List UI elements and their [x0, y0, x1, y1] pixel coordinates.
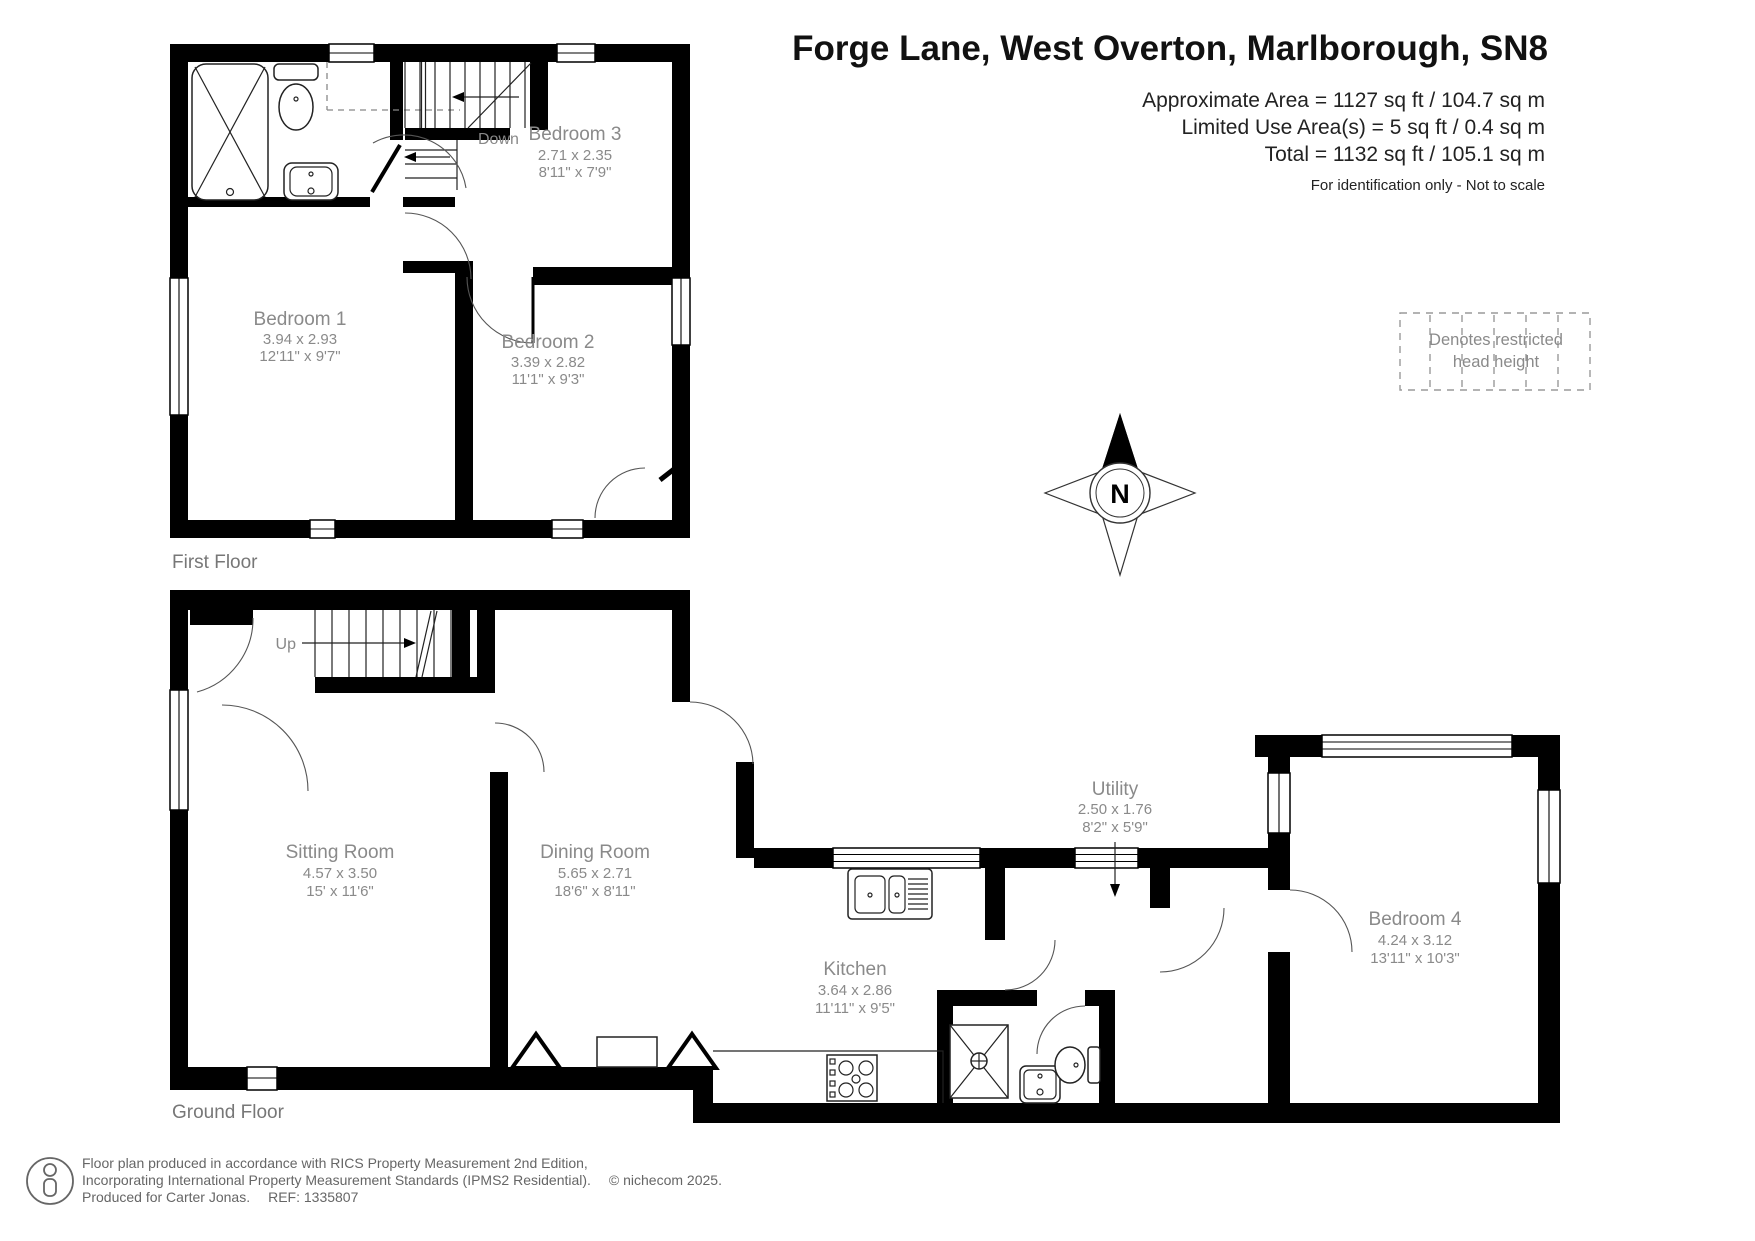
svg-text:3.39 x 2.82: 3.39 x 2.82 — [511, 354, 585, 371]
room-label-bedroom-2: Bedroom 2 3.39 x 2.82 11'1" x 9'3" — [502, 332, 595, 388]
page-title: Forge Lane, West Overton, Marlborough, S… — [792, 29, 1548, 68]
limited-use-area-text: Limited Use Area(s) = 5 sq ft / 0.4 sq m — [1181, 116, 1545, 139]
first-floor-label: First Floor — [172, 552, 258, 573]
room-label-bedroom-3: Bedroom 3 2.71 x 2.35 8'11" x 7'9" — [529, 124, 622, 181]
window — [672, 278, 690, 345]
window — [170, 690, 188, 810]
footer-line2: Incorporating International Property Mea… — [82, 1172, 722, 1188]
total-area-text: Total = 1132 sq ft / 105.1 sq m — [1265, 143, 1545, 166]
svg-text:11'11" x 9'5": 11'11" x 9'5" — [815, 1000, 895, 1017]
window — [552, 520, 583, 538]
window — [557, 44, 595, 62]
svg-text:11'1" x 9'3": 11'1" x 9'3" — [512, 371, 585, 388]
approximate-area-text: Approximate Area = 1127 sq ft / 104.7 sq… — [1142, 89, 1545, 112]
svg-text:Bedroom 2: Bedroom 2 — [502, 332, 595, 353]
svg-text:15' x 11'6": 15' x 11'6" — [306, 883, 374, 900]
svg-text:Bedroom 4: Bedroom 4 — [1369, 909, 1462, 930]
bedroom4-door-gap — [1268, 890, 1290, 952]
svg-text:13'11" x 10'3": 13'11" x 10'3" — [1370, 950, 1460, 967]
svg-text:4.24 x 3.12: 4.24 x 3.12 — [1378, 932, 1452, 949]
copyright-text: © nichecom 2025. — [609, 1172, 722, 1188]
compass-north-label: N — [1110, 479, 1130, 509]
ground-floor-label: Ground Floor — [172, 1102, 285, 1123]
bath-icon — [192, 64, 268, 200]
window — [1075, 848, 1138, 868]
svg-text:2.71 x 2.35: 2.71 x 2.35 — [538, 147, 612, 164]
svg-text:3.64 x 2.86: 3.64 x 2.86 — [818, 982, 892, 999]
svg-text:Utility: Utility — [1092, 779, 1139, 800]
shower-icon — [950, 1025, 1008, 1098]
window — [247, 1067, 277, 1090]
window — [310, 520, 335, 538]
svg-text:Bedroom 1: Bedroom 1 — [254, 309, 347, 330]
svg-text:8'2" x 5'9": 8'2" x 5'9" — [1082, 819, 1148, 836]
svg-text:Kitchen: Kitchen — [823, 959, 886, 980]
svg-text:Bedroom 3: Bedroom 3 — [529, 124, 622, 145]
window — [1322, 735, 1512, 757]
svg-text:8'11" x 7'9": 8'11" x 7'9" — [539, 164, 612, 181]
toilet-icon — [1055, 1047, 1100, 1083]
svg-text:3.94 x 2.93: 3.94 x 2.93 — [263, 331, 337, 348]
room-label-kitchen: Kitchen 3.64 x 2.86 11'11" x 9'5" — [815, 959, 895, 1017]
reference-number: REF: 1335807 — [268, 1189, 358, 1205]
footer-line1: Floor plan produced in accordance with R… — [82, 1155, 588, 1171]
window — [170, 278, 188, 415]
window — [329, 44, 374, 62]
svg-text:12'11" x 9'7": 12'11" x 9'7" — [259, 348, 340, 365]
hob-icon — [827, 1055, 877, 1101]
svg-text:2.50 x 1.76: 2.50 x 1.76 — [1078, 801, 1152, 818]
svg-text:5.65 x 2.71: 5.65 x 2.71 — [558, 865, 632, 882]
sink-icon — [284, 163, 338, 200]
legend-text-line1: Denotes restricted — [1429, 331, 1563, 349]
disclaimer-text: For identification only - Not to scale — [1311, 177, 1545, 194]
svg-text:Dining Room: Dining Room — [540, 842, 650, 863]
stairs-down-label: Down — [478, 131, 519, 148]
room-label-bedroom-1: Bedroom 1 3.94 x 2.93 12'11" x 9'7" — [254, 309, 347, 365]
window — [1538, 790, 1560, 883]
room-label-bedroom-4: Bedroom 4 4.24 x 3.12 13'11" x 10'3" — [1369, 909, 1462, 967]
window — [1268, 773, 1290, 833]
footer-line3: Produced for Carter Jonas.REF: 1335807 — [82, 1189, 359, 1205]
window — [833, 848, 980, 868]
svg-text:18'6" x 8'11": 18'6" x 8'11" — [554, 883, 635, 900]
svg-text:4.57 x 3.50: 4.57 x 3.50 — [303, 865, 377, 882]
stairs-up-label: Up — [276, 636, 297, 653]
floorplan-drawing: Forge Lane, West Overton, Marlborough, S… — [0, 0, 1755, 1241]
kitchen-sink-icon — [848, 869, 932, 919]
floorplan-page: Forge Lane, West Overton, Marlborough, S… — [0, 0, 1755, 1241]
sink-icon — [1020, 1066, 1060, 1103]
legend-text-line2: head height — [1453, 353, 1540, 371]
svg-text:Sitting Room: Sitting Room — [286, 842, 395, 863]
